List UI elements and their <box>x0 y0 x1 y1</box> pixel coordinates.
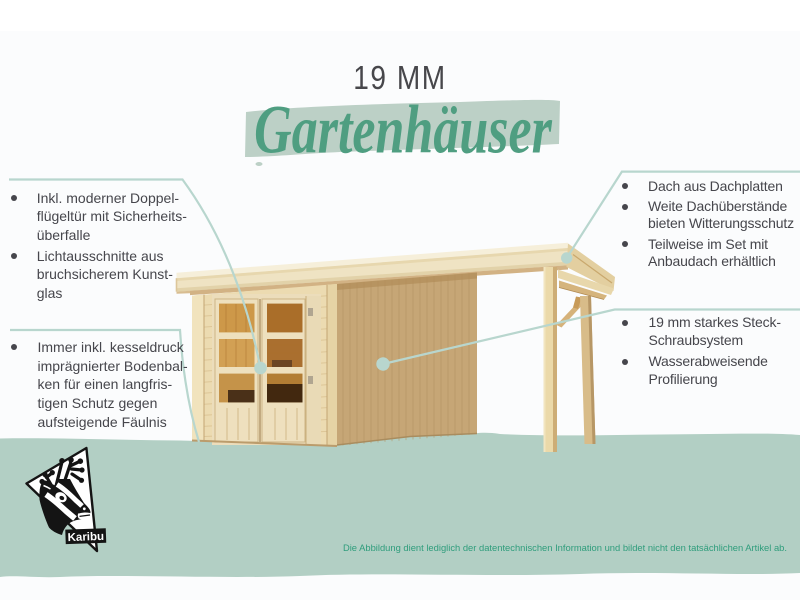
svg-text:Die Abbildung dient lediglich: Die Abbildung dient lediglich der datent… <box>343 542 787 553</box>
svg-text:Karibu: Karibu <box>67 531 104 544</box>
